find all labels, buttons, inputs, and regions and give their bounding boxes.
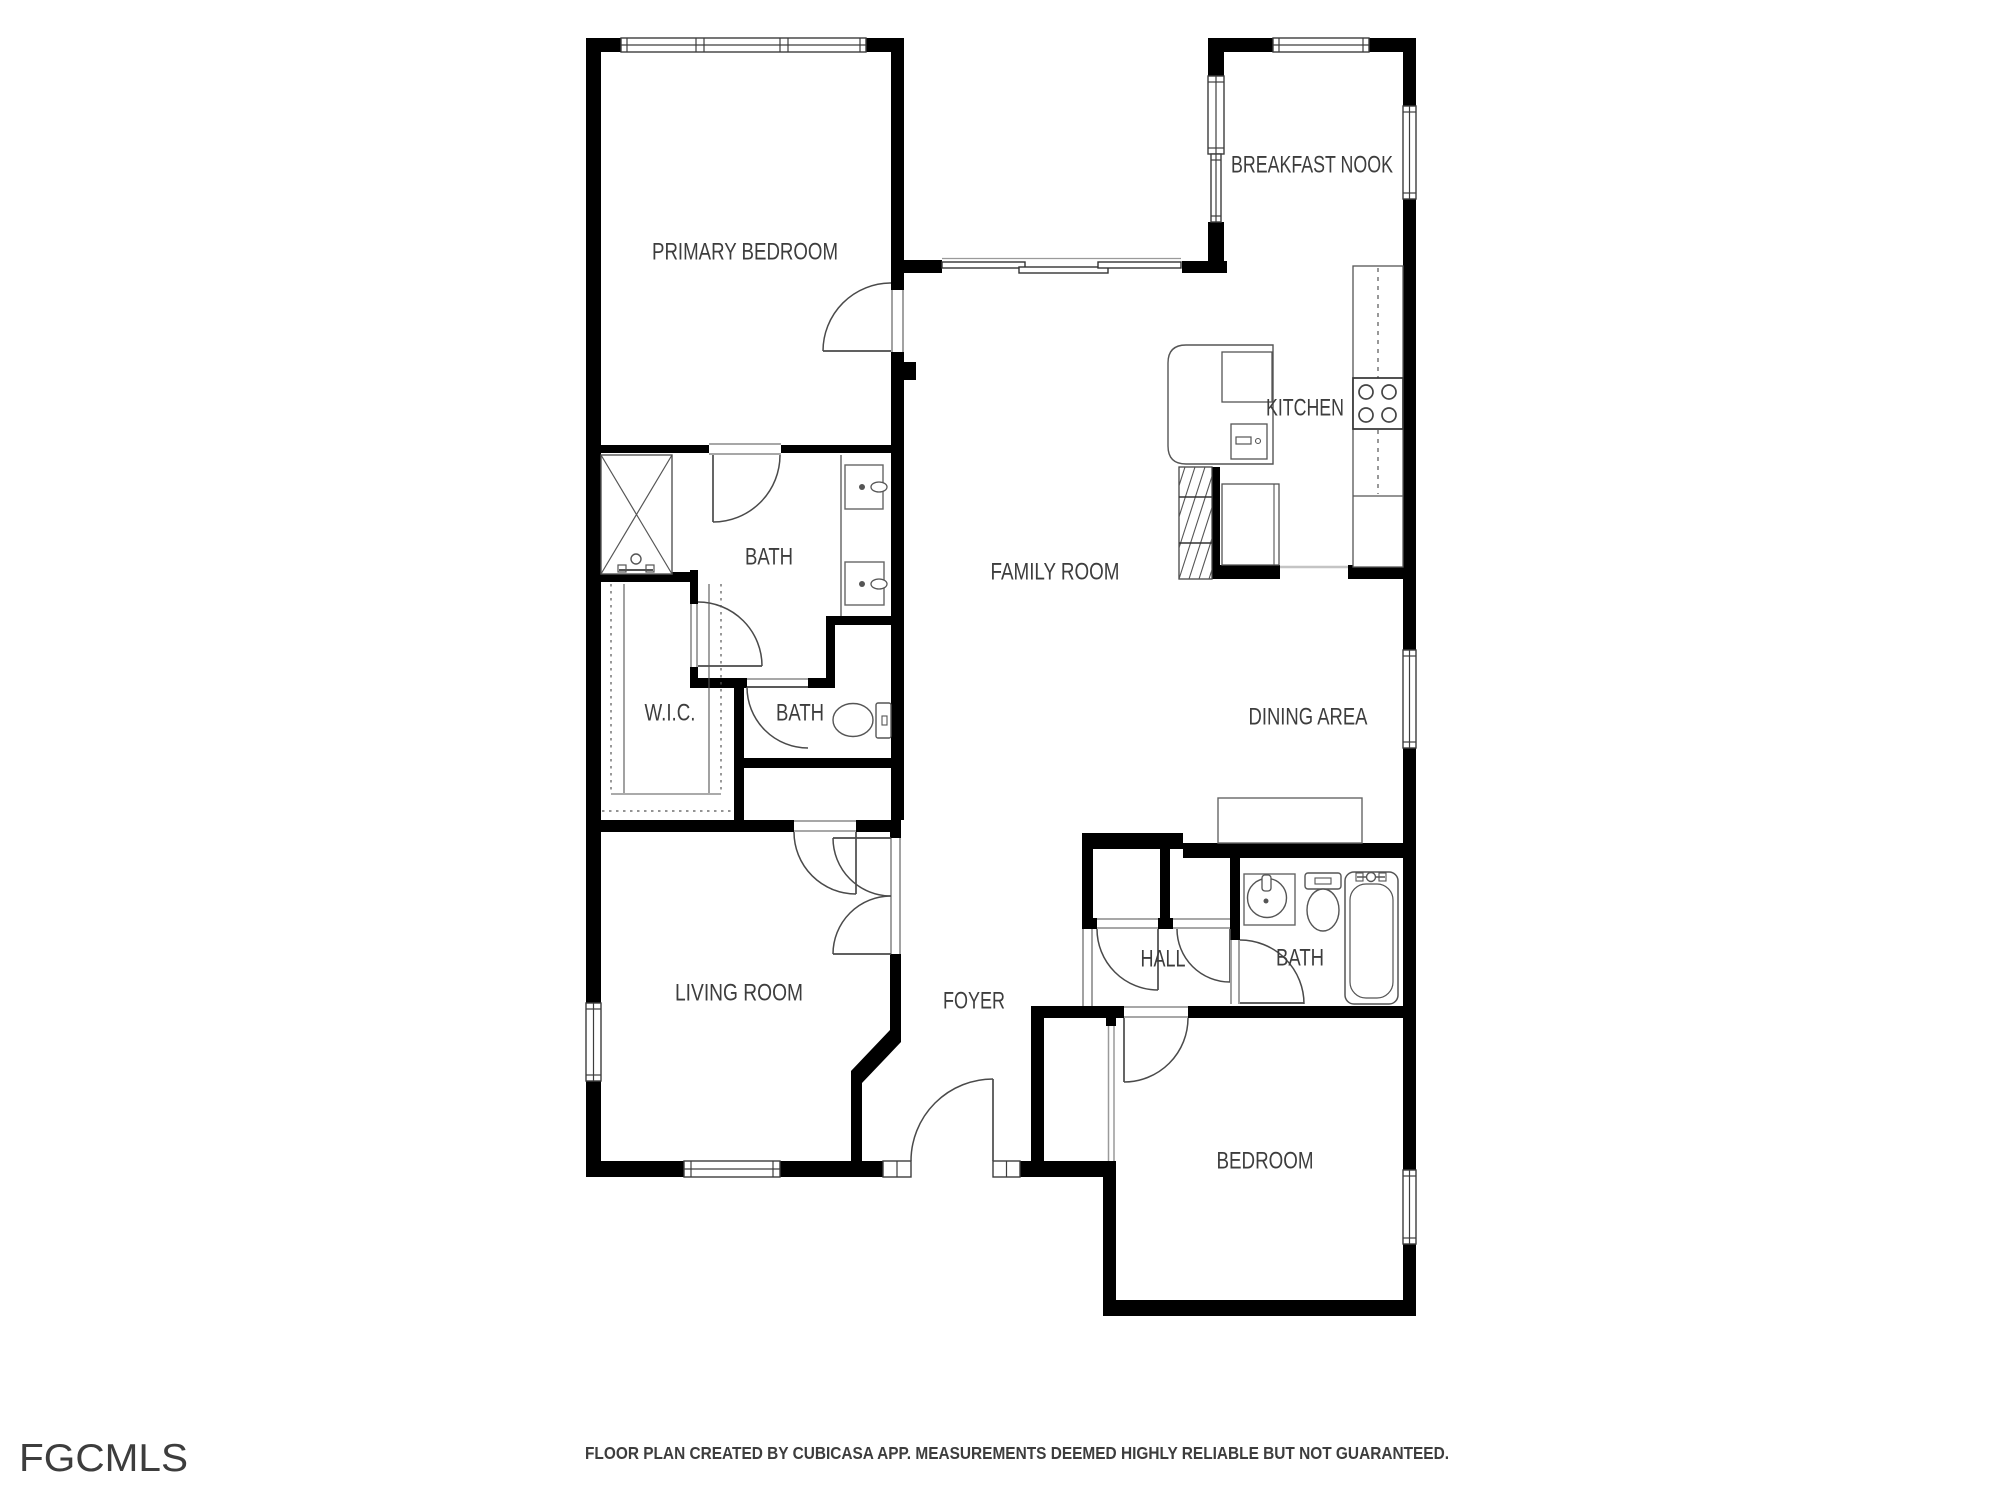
svg-text:BREAKFAST NOOK: BREAKFAST NOOK xyxy=(1231,152,1393,179)
svg-text:FLOOR PLAN CREATED BY CUBICASA: FLOOR PLAN CREATED BY CUBICASA APP. MEAS… xyxy=(585,1443,1449,1463)
svg-text:HALL: HALL xyxy=(1141,946,1186,973)
svg-text:LIVING ROOM: LIVING ROOM xyxy=(675,980,803,1007)
svg-text:FAMILY ROOM: FAMILY ROOM xyxy=(991,559,1120,586)
svg-text:BATH: BATH xyxy=(776,700,824,727)
svg-text:W.I.C.: W.I.C. xyxy=(645,700,696,727)
svg-text:FGCMLS: FGCMLS xyxy=(19,1437,188,1480)
svg-text:BEDROOM: BEDROOM xyxy=(1217,1148,1314,1175)
svg-text:KITCHEN: KITCHEN xyxy=(1266,395,1344,422)
svg-text:BATH: BATH xyxy=(745,544,793,571)
svg-text:FOYER: FOYER xyxy=(943,988,1005,1015)
svg-text:PRIMARY BEDROOM: PRIMARY BEDROOM xyxy=(652,239,838,266)
svg-text:DINING AREA: DINING AREA xyxy=(1249,704,1368,731)
svg-text:BATH: BATH xyxy=(1276,945,1324,972)
